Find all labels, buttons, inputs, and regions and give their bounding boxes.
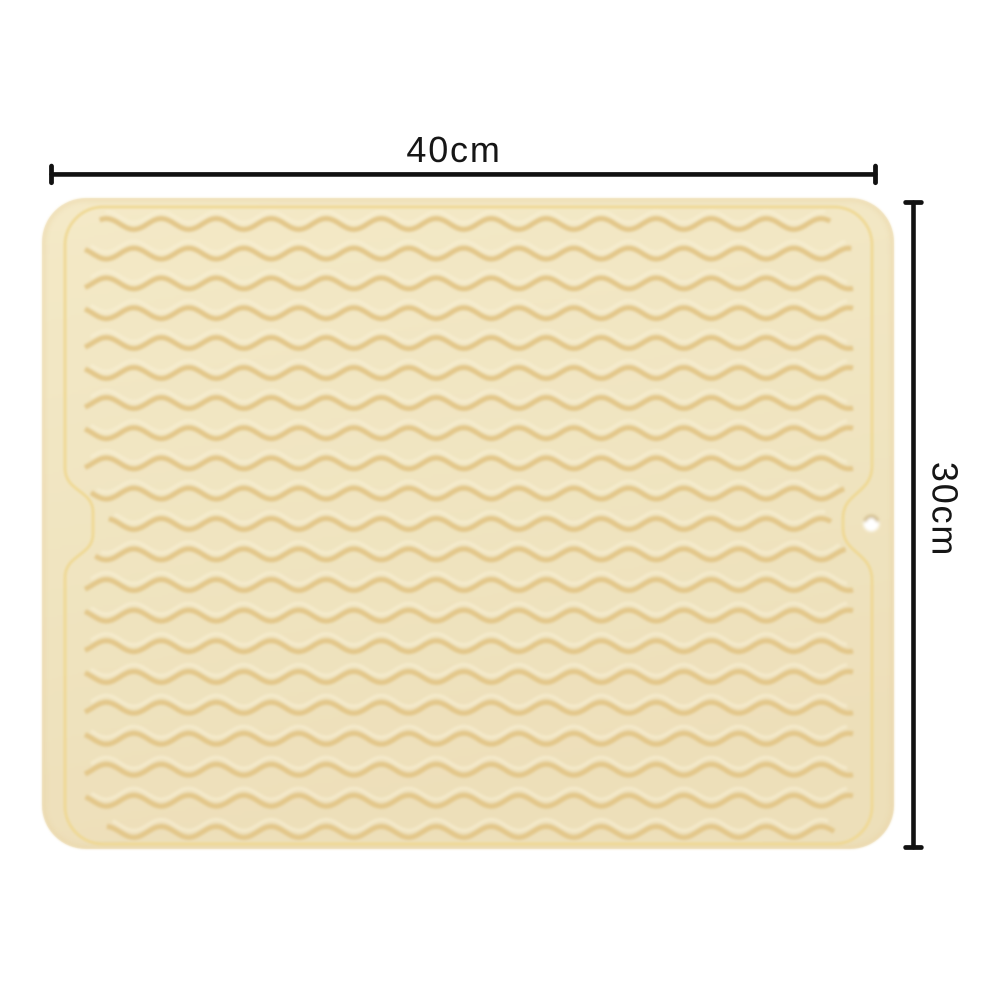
svg-text:30cm: 30cm [925,462,966,557]
svg-text:40cm: 40cm [406,129,501,170]
